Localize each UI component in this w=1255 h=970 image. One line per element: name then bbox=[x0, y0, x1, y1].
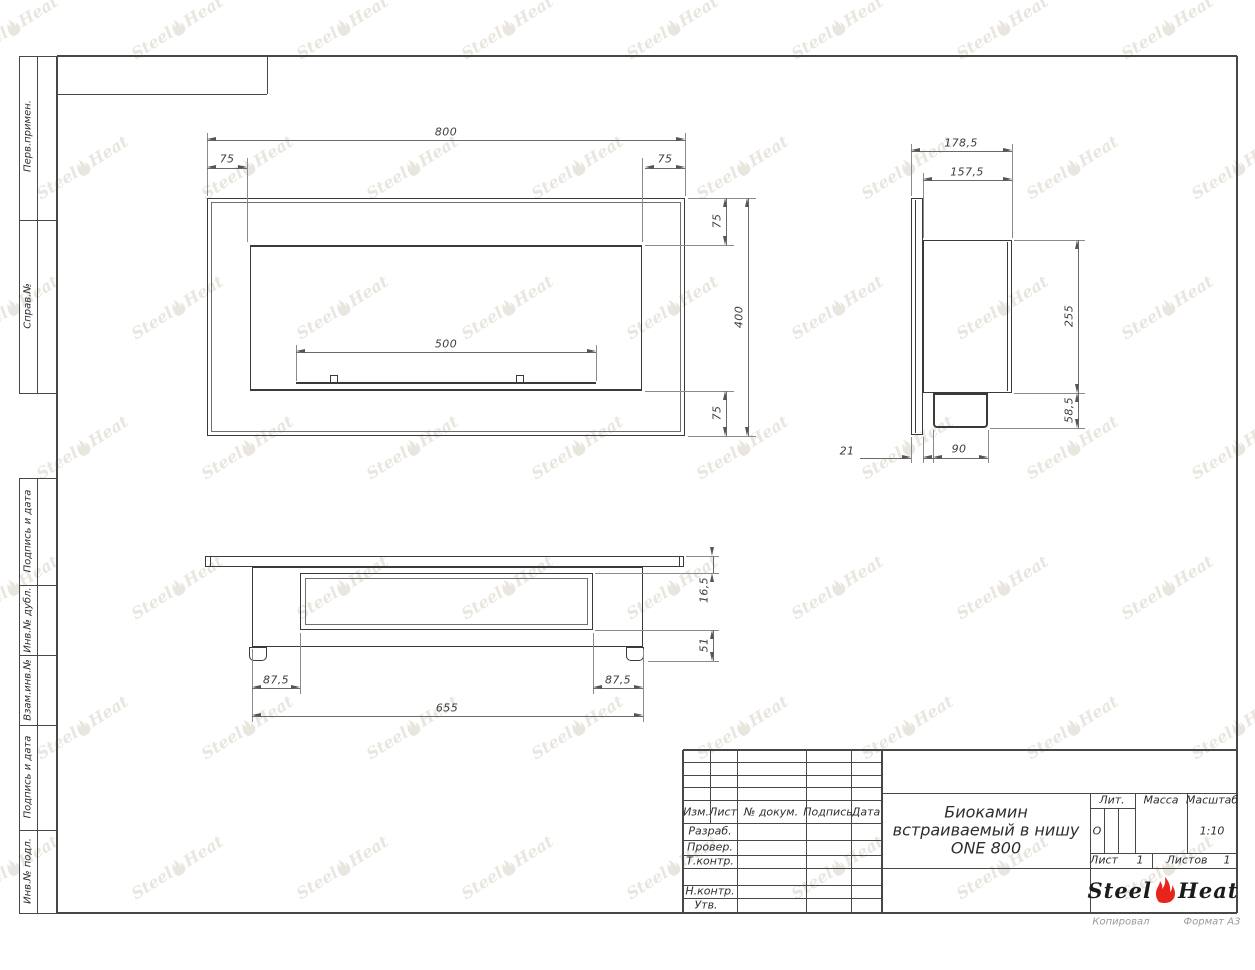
tb-sheet-value: 1 bbox=[1137, 854, 1144, 867]
tb-col-podpis: Подпись bbox=[803, 806, 852, 819]
tb-sheets-value: 1 bbox=[1224, 854, 1231, 867]
tb-lit-label: Лит. bbox=[1099, 794, 1124, 807]
tb-row-utv: Утв. bbox=[694, 899, 717, 912]
tb-row-nkontr: Н.контр. bbox=[685, 885, 734, 898]
flame-icon bbox=[1154, 877, 1176, 903]
tb-lit-value: О bbox=[1093, 825, 1102, 838]
logo-text-heat: Heat bbox=[1178, 878, 1239, 903]
drawing-sheet: SteelHeatSteelHeatSteelHeatSteelHeatStee… bbox=[0, 0, 1255, 970]
format-caption: Формат А3 bbox=[1184, 917, 1241, 928]
tb-col-list: Лист bbox=[709, 806, 737, 819]
tb-scale-label: Масштаб bbox=[1186, 794, 1238, 807]
tb-col-ndokum: № докум. bbox=[744, 806, 798, 819]
doc-title-line1: Биокамин bbox=[944, 803, 1028, 822]
tb-row-tkontr: Т.контр. bbox=[686, 855, 734, 868]
tb-sheets-label: Листов bbox=[1166, 854, 1207, 867]
tb-scale-value: 1:10 bbox=[1200, 825, 1225, 838]
steelheat-logo: Steel Heat bbox=[1087, 877, 1238, 903]
doc-title-line3: ONE 800 bbox=[951, 839, 1021, 858]
copied-caption: Копировал bbox=[1092, 917, 1149, 928]
tb-col-izm: Изм. bbox=[683, 806, 709, 819]
tb-row-razrab: Разраб. bbox=[688, 825, 731, 838]
logo-text-steel: Steel bbox=[1087, 878, 1152, 903]
tb-row-prover: Провер. bbox=[687, 841, 733, 854]
tb-sheet-label: Лист bbox=[1090, 854, 1118, 867]
doc-title-line2: встраиваемый в нишу bbox=[893, 821, 1080, 840]
tb-mass-label: Масса bbox=[1143, 794, 1178, 807]
title-block: Изм. Лист № докум. Подпись Дата Разраб. … bbox=[0, 0, 1255, 970]
tb-col-data: Дата bbox=[852, 806, 880, 819]
